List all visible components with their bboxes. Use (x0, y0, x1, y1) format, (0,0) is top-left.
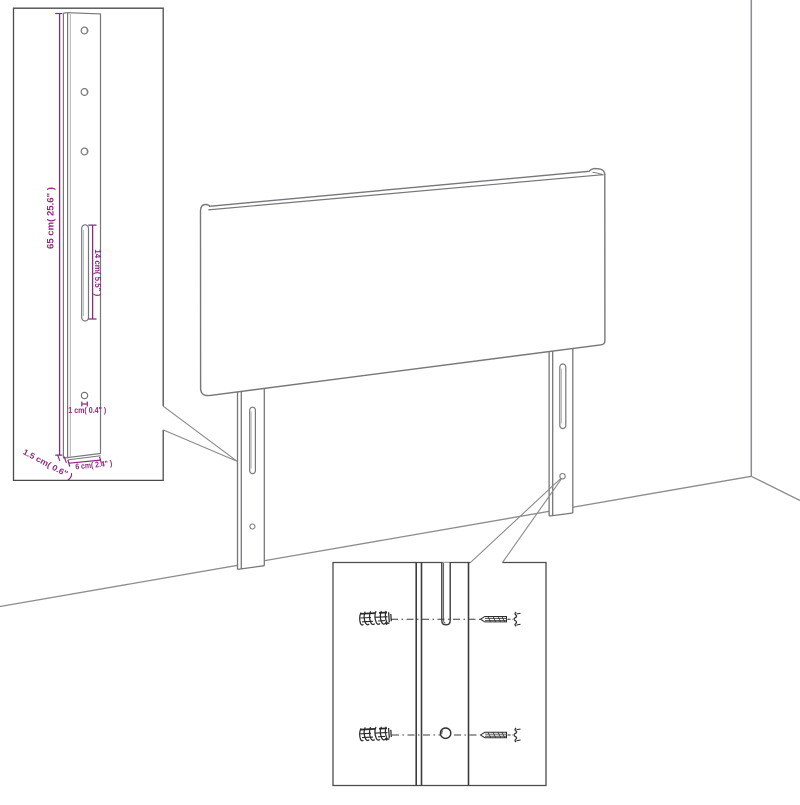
svg-text:1 cm( 0.4" ): 1 cm( 0.4" ) (68, 406, 106, 415)
svg-text:14 cm( 5.5" ): 14 cm( 5.5" ) (93, 249, 103, 296)
svg-text:65 cm( 25.6" ): 65 cm( 25.6" ) (46, 187, 56, 249)
